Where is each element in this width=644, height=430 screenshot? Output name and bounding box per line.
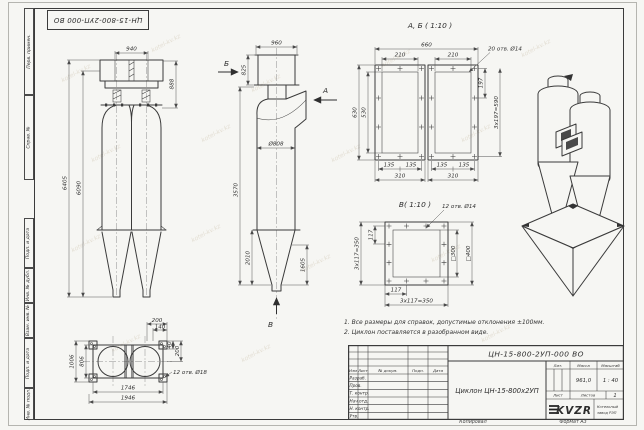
dim-side-dia808: Ø808: [267, 141, 284, 148]
frame-label-vzam-inv: Взам. инв. №: [24, 303, 34, 338]
flange-ab-title: А, Б ( 1:10 ): [407, 21, 452, 30]
dim-bottom-1746: 1746: [121, 386, 136, 392]
flange-ab-dimensions: 660 210 210 20 отв. Ø14 197 3х197=590 53…: [353, 43, 523, 183]
footer-copied-label: Копировал: [438, 420, 508, 425]
dim-ab-660: 660: [421, 43, 432, 49]
dim-ab-135: 135: [459, 163, 470, 169]
side-dimensions: 960 825 3570 Ø808 2010 1605: [234, 41, 310, 286]
dim-bottom-1946: 1946: [121, 396, 136, 402]
bottom-dimensions: 1006 806 1746 1946 200 140 40 200 12 отв…: [70, 318, 208, 404]
iso-geometry: [522, 74, 624, 296]
frame-label-podp-data-2: Подп. и дата: [24, 338, 34, 388]
dim-ab-530: 530: [362, 107, 368, 118]
frame-label-text: Перв. примен.: [27, 34, 32, 69]
view-isometric: [512, 66, 634, 314]
dim-bottom-200: 200: [152, 318, 163, 324]
view-front: 940 888 6405 6090: [55, 38, 230, 330]
flange-v-geometry: [385, 222, 448, 285]
view-bottom: 1006 806 1746 1946 200 140 40 200 12 отв…: [60, 316, 275, 428]
dim-ab-135: 135: [437, 163, 448, 169]
dim-front-940: 940: [126, 47, 137, 53]
frame-label-text: Справ. №: [27, 126, 32, 148]
frame-label-text: Инв. № дубл.: [27, 270, 32, 301]
doc-number: ЦН-15-800-2УП-000 ВО: [488, 350, 584, 359]
mass-value: 961,0: [576, 378, 592, 384]
side-geometry: [253, 55, 306, 291]
sheets-label: Листов: [580, 393, 596, 398]
dim-ab-210-right: 210: [448, 53, 459, 59]
title-block-change-header: Изм Лист № докум. Подп. Дата: [349, 368, 444, 373]
sheets-value: 1: [613, 393, 616, 399]
view-arrow-label-b: Б: [224, 59, 229, 68]
row-utv: Утв.: [350, 414, 359, 419]
frame-label-text: Взам. инв. №: [27, 305, 32, 336]
row-prov: Пров.: [350, 383, 362, 388]
dim-v-holes: 12 отв. Ø14: [442, 203, 476, 210]
row-t-kontr: Т. контр.: [350, 391, 369, 396]
frame-label-perv-primen: Перв. примен.: [24, 8, 34, 95]
note-line: 2. Циклон поставляется в разобранном вид…: [344, 328, 632, 338]
dim-front-6405: 6405: [63, 175, 69, 190]
dim-bottom-1006: 1006: [70, 354, 76, 369]
dim-v-350: 3х117=350: [355, 237, 361, 270]
dim-side-960: 960: [271, 41, 282, 47]
note-line: 1. Все размеры для справок, допустимые о…: [344, 318, 632, 328]
company-logo-cell: KVZR Котельный завод РЭП: [549, 405, 619, 417]
dim-front-6090: 6090: [77, 180, 83, 195]
dim-ab-197: 197: [479, 77, 485, 88]
mass-label: Масса: [577, 363, 590, 368]
frame-label-text: Подп. и дата: [27, 227, 32, 258]
frame-label-text: Подп. и дата: [27, 347, 32, 378]
dim-bottom-806: 806: [80, 356, 86, 367]
dim-ab-holes: 20 отв. Ø14: [488, 46, 522, 53]
dim-side-2010: 2010: [246, 250, 252, 265]
dim-v-350: 3х117=350: [400, 299, 433, 305]
col-dokum: № докум.: [377, 368, 397, 373]
dim-v-sq300: □300: [451, 245, 457, 261]
row-nach-otd: Нач.отд.: [350, 398, 369, 403]
dim-side-3570: 3570: [234, 182, 240, 197]
dim-ab-590: 3х197=590: [494, 96, 500, 129]
scale-label: Масштаб: [601, 363, 620, 368]
dim-v-117: 117: [391, 288, 402, 294]
title-block: Изм Лист № докум. Подп. Дата Разраб. Про…: [348, 345, 624, 420]
flange-v-dimensions: 117 3х117=350 117 3х117=350 □300 □400: [355, 222, 475, 307]
dim-v-sq400: □400: [466, 245, 472, 261]
frame-label-inv-dubl: Инв. № дубл.: [24, 268, 34, 303]
notes: 1. Все размеры для справок, допустимые о…: [344, 318, 632, 337]
frame-label-sprav: Справ. №: [24, 95, 34, 180]
dim-v-117: 117: [369, 229, 375, 240]
drawing-sheet: kotel-kv.kz kotel-kv.kz kotel-kv.kz kote…: [0, 0, 644, 430]
dim-bottom-140: 140: [155, 325, 166, 331]
view-arrow-label-a: А: [322, 86, 328, 95]
frame-label-podp-data-1: Подп. и дата: [24, 218, 34, 268]
flange-ab-geometry: [375, 65, 478, 160]
row-n-kontr: Н. контр.: [350, 406, 370, 411]
dim-ab-210-left: 210: [395, 53, 406, 59]
dim-side-1605: 1605: [301, 257, 307, 272]
dim-bottom-40: 40: [167, 341, 173, 349]
dim-side-825: 825: [242, 64, 248, 75]
view-flange-v: В( 1:10 ) 12 отв. Ø14 117 3х117=350 117 …: [345, 195, 510, 317]
frame-label-text: Инв. № подл.: [27, 388, 32, 420]
dim-bottom-200v: 200: [175, 345, 181, 356]
company-name-line1: Котельный: [597, 405, 619, 409]
company-name-line2: завод РЭП: [597, 411, 617, 415]
dim-bottom-holes: 12 отв. Ø18: [173, 369, 207, 376]
dim-ab-310: 310: [395, 174, 406, 180]
view-side: 960 825 3570 Ø808 2010 1605 Б А В: [210, 30, 345, 350]
frame-label-inv-podl: Инв. № подл.: [24, 388, 34, 420]
col-list: Лист: [357, 368, 369, 373]
dim-ab-135: 135: [406, 163, 417, 169]
col-data: Дата: [432, 368, 444, 373]
lit-label: Лит.: [553, 363, 563, 368]
front-geometry: [97, 60, 166, 297]
col-izm: Изм: [349, 368, 357, 373]
col-podp: Подп.: [412, 368, 424, 373]
scale-value: 1 : 40: [603, 378, 619, 384]
title-block-lit-mass-scale: Лит. Масса Масштаб 961,0 1 : 40 Лист Лис…: [552, 363, 620, 399]
dim-ab-310: 310: [448, 174, 459, 180]
sheet-label: Лист: [552, 393, 564, 398]
row-razrab: Разраб.: [350, 376, 366, 381]
flange-v-title: В( 1:10 ): [399, 200, 431, 209]
dim-ab-135: 135: [384, 163, 395, 169]
logo-text: KVZR: [556, 405, 592, 417]
part-name: Циклон ЦН-15-800х2УП: [455, 387, 538, 395]
footer-format-label: Формат А3: [538, 420, 608, 425]
dim-ab-630: 630: [353, 107, 359, 118]
doc-number-stamp: ЦН-15-800-2УП-000 ВО: [47, 10, 149, 30]
dim-front-888: 888: [170, 78, 176, 89]
